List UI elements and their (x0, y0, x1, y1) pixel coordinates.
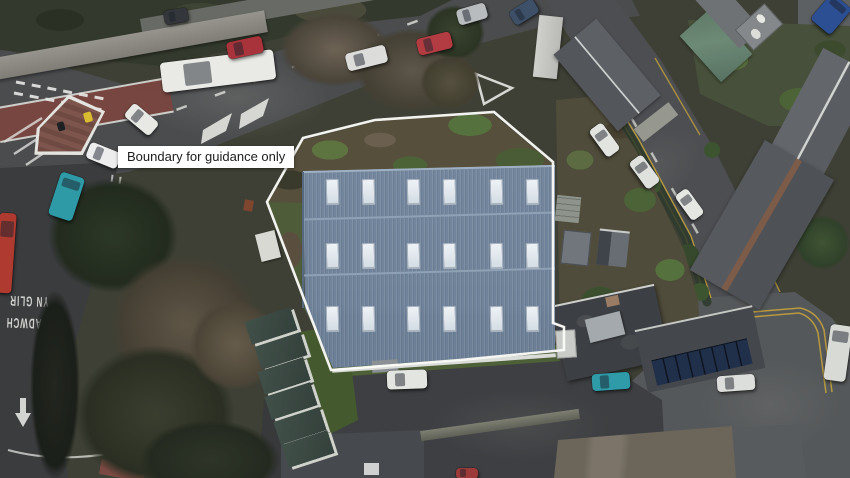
aerial-photo: CLEARKEEPYN GLIRCADWCH Boundary for guid… (0, 0, 850, 478)
boundary-overlay (0, 0, 850, 478)
boundary-line (267, 112, 564, 370)
boundary-label: Boundary for guidance only (118, 146, 294, 168)
